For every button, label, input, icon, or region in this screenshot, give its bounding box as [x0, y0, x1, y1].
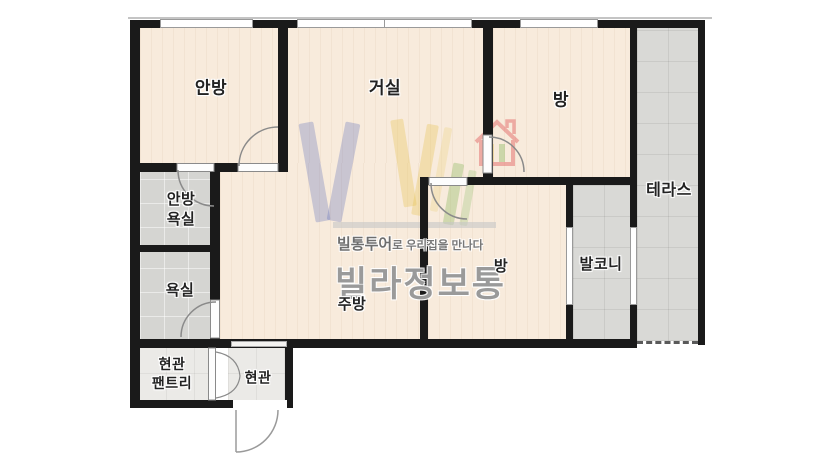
- wall-terrace-right: [698, 20, 705, 345]
- wall-master-living: [278, 20, 288, 172]
- label-bedroom-upper: 방: [553, 90, 569, 113]
- entrance-threshold: [231, 341, 287, 347]
- logo-house-icon: [474, 118, 520, 168]
- wall-bath-divider: [140, 245, 210, 252]
- wall-mid-horizontal: [420, 177, 637, 185]
- label-bathroom: 욕실: [166, 281, 195, 301]
- watermark-tagline-rest: 로 우리집을 만나다: [392, 240, 483, 252]
- label-living-room: 거실: [369, 78, 401, 101]
- label-bedroom-middle: 방: [494, 257, 508, 277]
- logo-underline-bar: [333, 222, 496, 228]
- living-room-window-mullion: [384, 20, 385, 27]
- label-master-bathroom: 안방 욕실: [167, 190, 196, 231]
- wall-left: [130, 20, 140, 408]
- balcony-window-left: [566, 227, 573, 305]
- label-entrance-pantry-line1: 현관: [159, 356, 186, 372]
- label-balcony: 발코니: [580, 255, 623, 275]
- watermark-tagline-emphasis: 빌통투어: [337, 236, 392, 253]
- label-terrace: 테라스: [646, 180, 692, 202]
- label-kitchen: 주방: [338, 295, 367, 315]
- pantry-bifold-door-leaf: [209, 348, 216, 400]
- watermark-tagline: 빌통투어로 우리집을 만나다: [337, 233, 483, 254]
- front-door-gap: [233, 400, 287, 408]
- label-master-bathroom-line1: 안방: [167, 191, 196, 208]
- balcony-window-right: [630, 227, 637, 305]
- label-entrance-pantry-line2: 팬트리: [152, 375, 192, 391]
- wall-entrance-right: [285, 339, 293, 408]
- label-entrance: 현관: [245, 369, 272, 388]
- wall-living-bedroom: [483, 20, 493, 185]
- wall-bath-right: [210, 163, 220, 345]
- master-bedroom-window: [160, 19, 253, 28]
- bedroom-upper-window: [520, 19, 598, 28]
- label-master-bathroom-line2: 욕실: [167, 211, 196, 228]
- wall-bottom: [130, 339, 637, 348]
- floorplan-canvas: 빌통투어로 우리집을 만나다 빌라정보통 안방 거실 방 테라스 안방 욕실 욕…: [0, 0, 840, 472]
- label-entrance-pantry: 현관 팬트리: [152, 355, 192, 393]
- front-door-arc: [236, 410, 278, 452]
- terrace-open-edge: [637, 341, 698, 344]
- label-master-bedroom: 안방: [195, 78, 227, 101]
